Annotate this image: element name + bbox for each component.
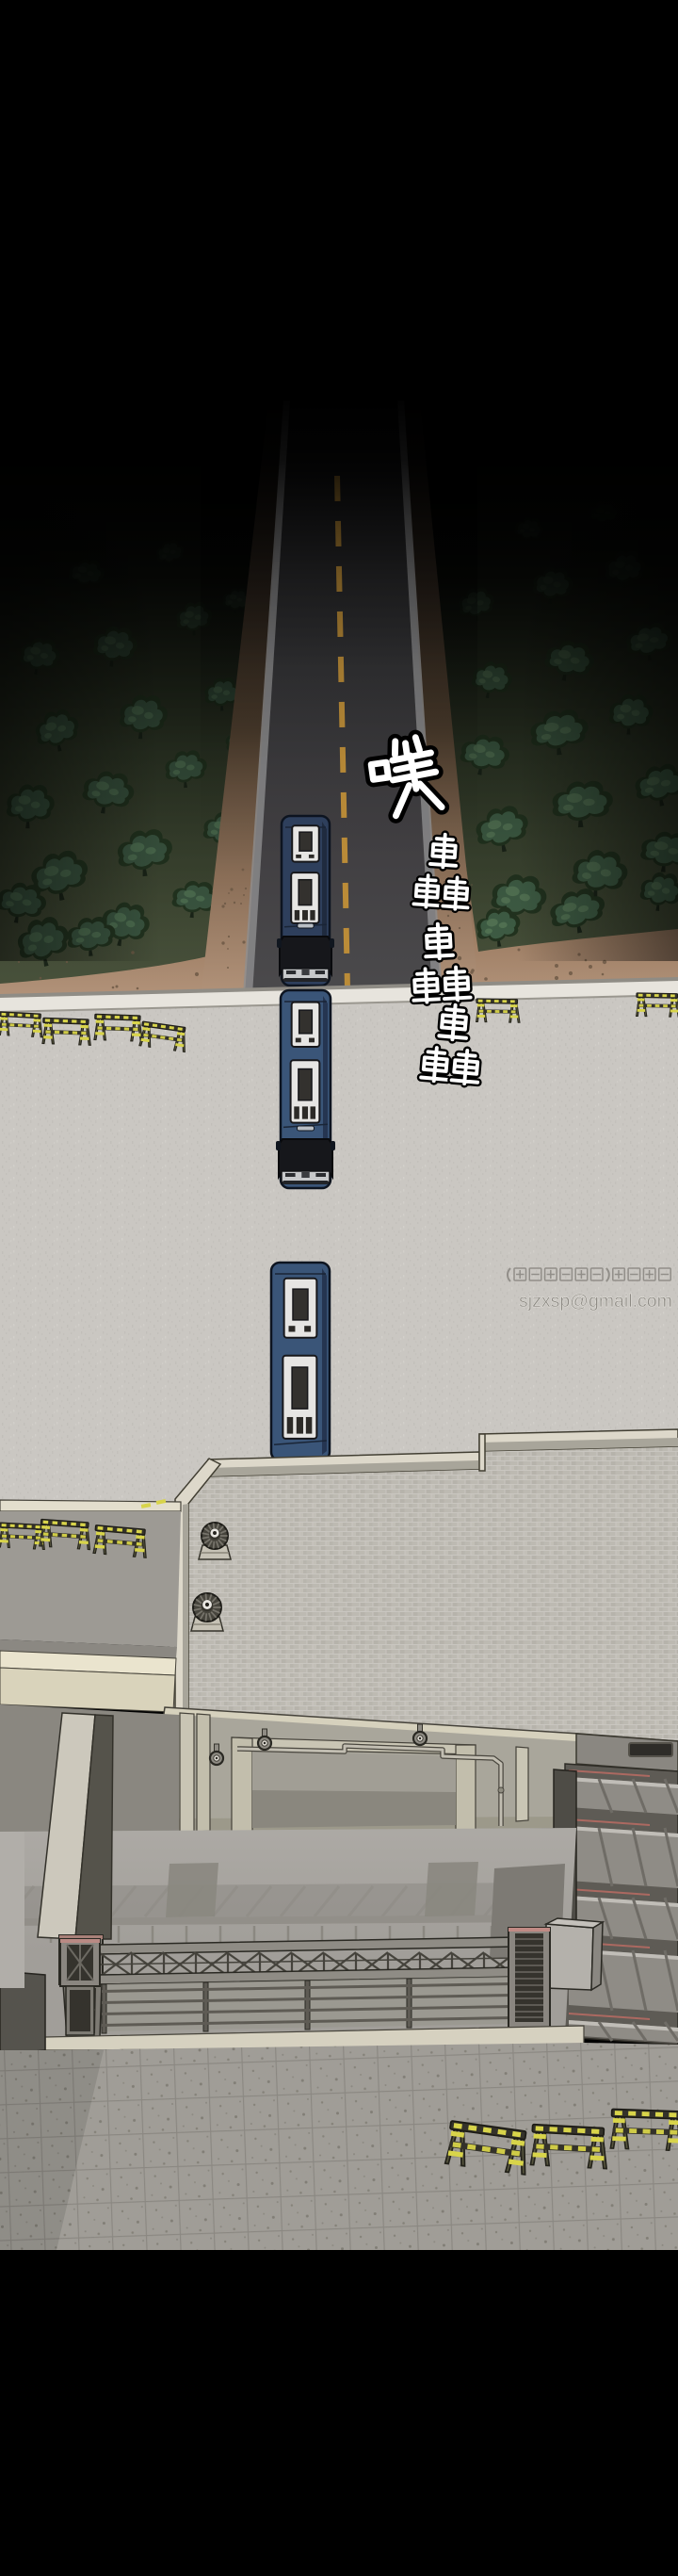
svg-text:sjzxsp@gmail.com: sjzxsp@gmail.com (519, 1291, 672, 1312)
